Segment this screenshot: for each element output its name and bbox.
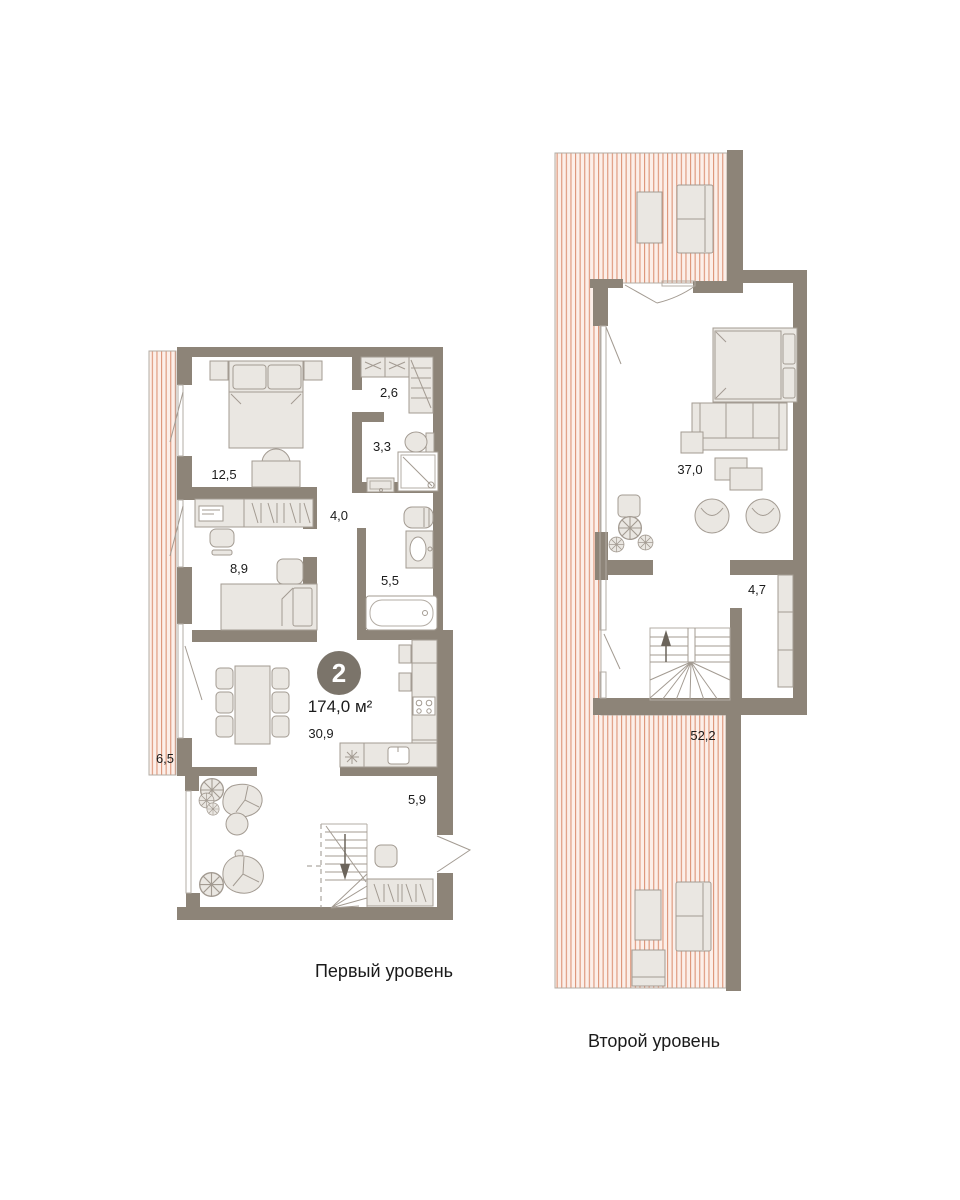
- rooms-badge-number: 2: [332, 658, 346, 688]
- plant-icon: [638, 535, 653, 550]
- level2-windows: [600, 281, 695, 698]
- plant-icon: [200, 873, 224, 897]
- armchair: [223, 784, 262, 817]
- lounge-seating: [199, 779, 263, 897]
- room-label-bathroom: 5,5: [381, 573, 399, 588]
- stairs-level1: [307, 824, 367, 908]
- plant-icon: [207, 803, 219, 815]
- stairs-level2: [650, 628, 730, 700]
- entry-door: [437, 836, 470, 872]
- stove-icon: [413, 697, 435, 715]
- room-label-bedroom: 12,5: [211, 467, 236, 482]
- room-label-closet: 4,7: [748, 582, 766, 597]
- terrace-door: [625, 285, 695, 303]
- desk-and-closet: [195, 499, 313, 555]
- plant-icon: [619, 517, 642, 540]
- room-label-bedroom-small: 8,9: [230, 561, 248, 576]
- coffee-tables: [715, 458, 762, 490]
- level1-caption: Первый уровень: [315, 961, 453, 981]
- armchairs: [695, 499, 780, 533]
- room-label-hall: 4,0: [330, 508, 348, 523]
- room-label-living-room: 37,0: [677, 462, 702, 477]
- room-label-wardrobe: 2,6: [380, 385, 398, 400]
- room-label-living: 30,9: [308, 726, 333, 741]
- room-label-hallway: 5,9: [408, 792, 426, 807]
- floor-plan-svg: 2 174,0 м² 12,5 2,6 3,3 4,0 8,9 5,5 30,9…: [0, 0, 960, 1200]
- closet-wardrobe: [778, 575, 793, 687]
- bed-master: [713, 328, 797, 402]
- pouf: [375, 845, 397, 867]
- bench: [252, 449, 300, 487]
- total-area-label: 174,0 м²: [308, 697, 373, 716]
- dining-table: [216, 666, 289, 744]
- floor-plan-page: { "badge": { "number": "2", "area": "174…: [0, 0, 960, 1200]
- entry-closet: [367, 845, 433, 906]
- room-label-balcony: 6,5: [156, 751, 174, 766]
- bed-double: [210, 361, 322, 448]
- ottoman: [226, 813, 248, 835]
- side-table-plants: [609, 495, 653, 552]
- level1-plan: 2 174,0 м² 12,5 2,6 3,3 4,0 8,9 5,5 30,9…: [149, 347, 470, 981]
- plant-icon: [609, 537, 624, 552]
- appliance-icon: [345, 750, 359, 764]
- bathroom-fixtures: [366, 507, 437, 630]
- room-label-bathroom-small: 3,3: [373, 439, 391, 454]
- level1-balcony-area: [149, 351, 176, 775]
- level2-caption: Второй уровень: [588, 1031, 720, 1051]
- room-label-terrace: 52,2: [690, 728, 715, 743]
- level2-plan: 37,0 4,7 52,2 Второй уровень: [555, 150, 807, 1051]
- sofa-master: [681, 403, 787, 453]
